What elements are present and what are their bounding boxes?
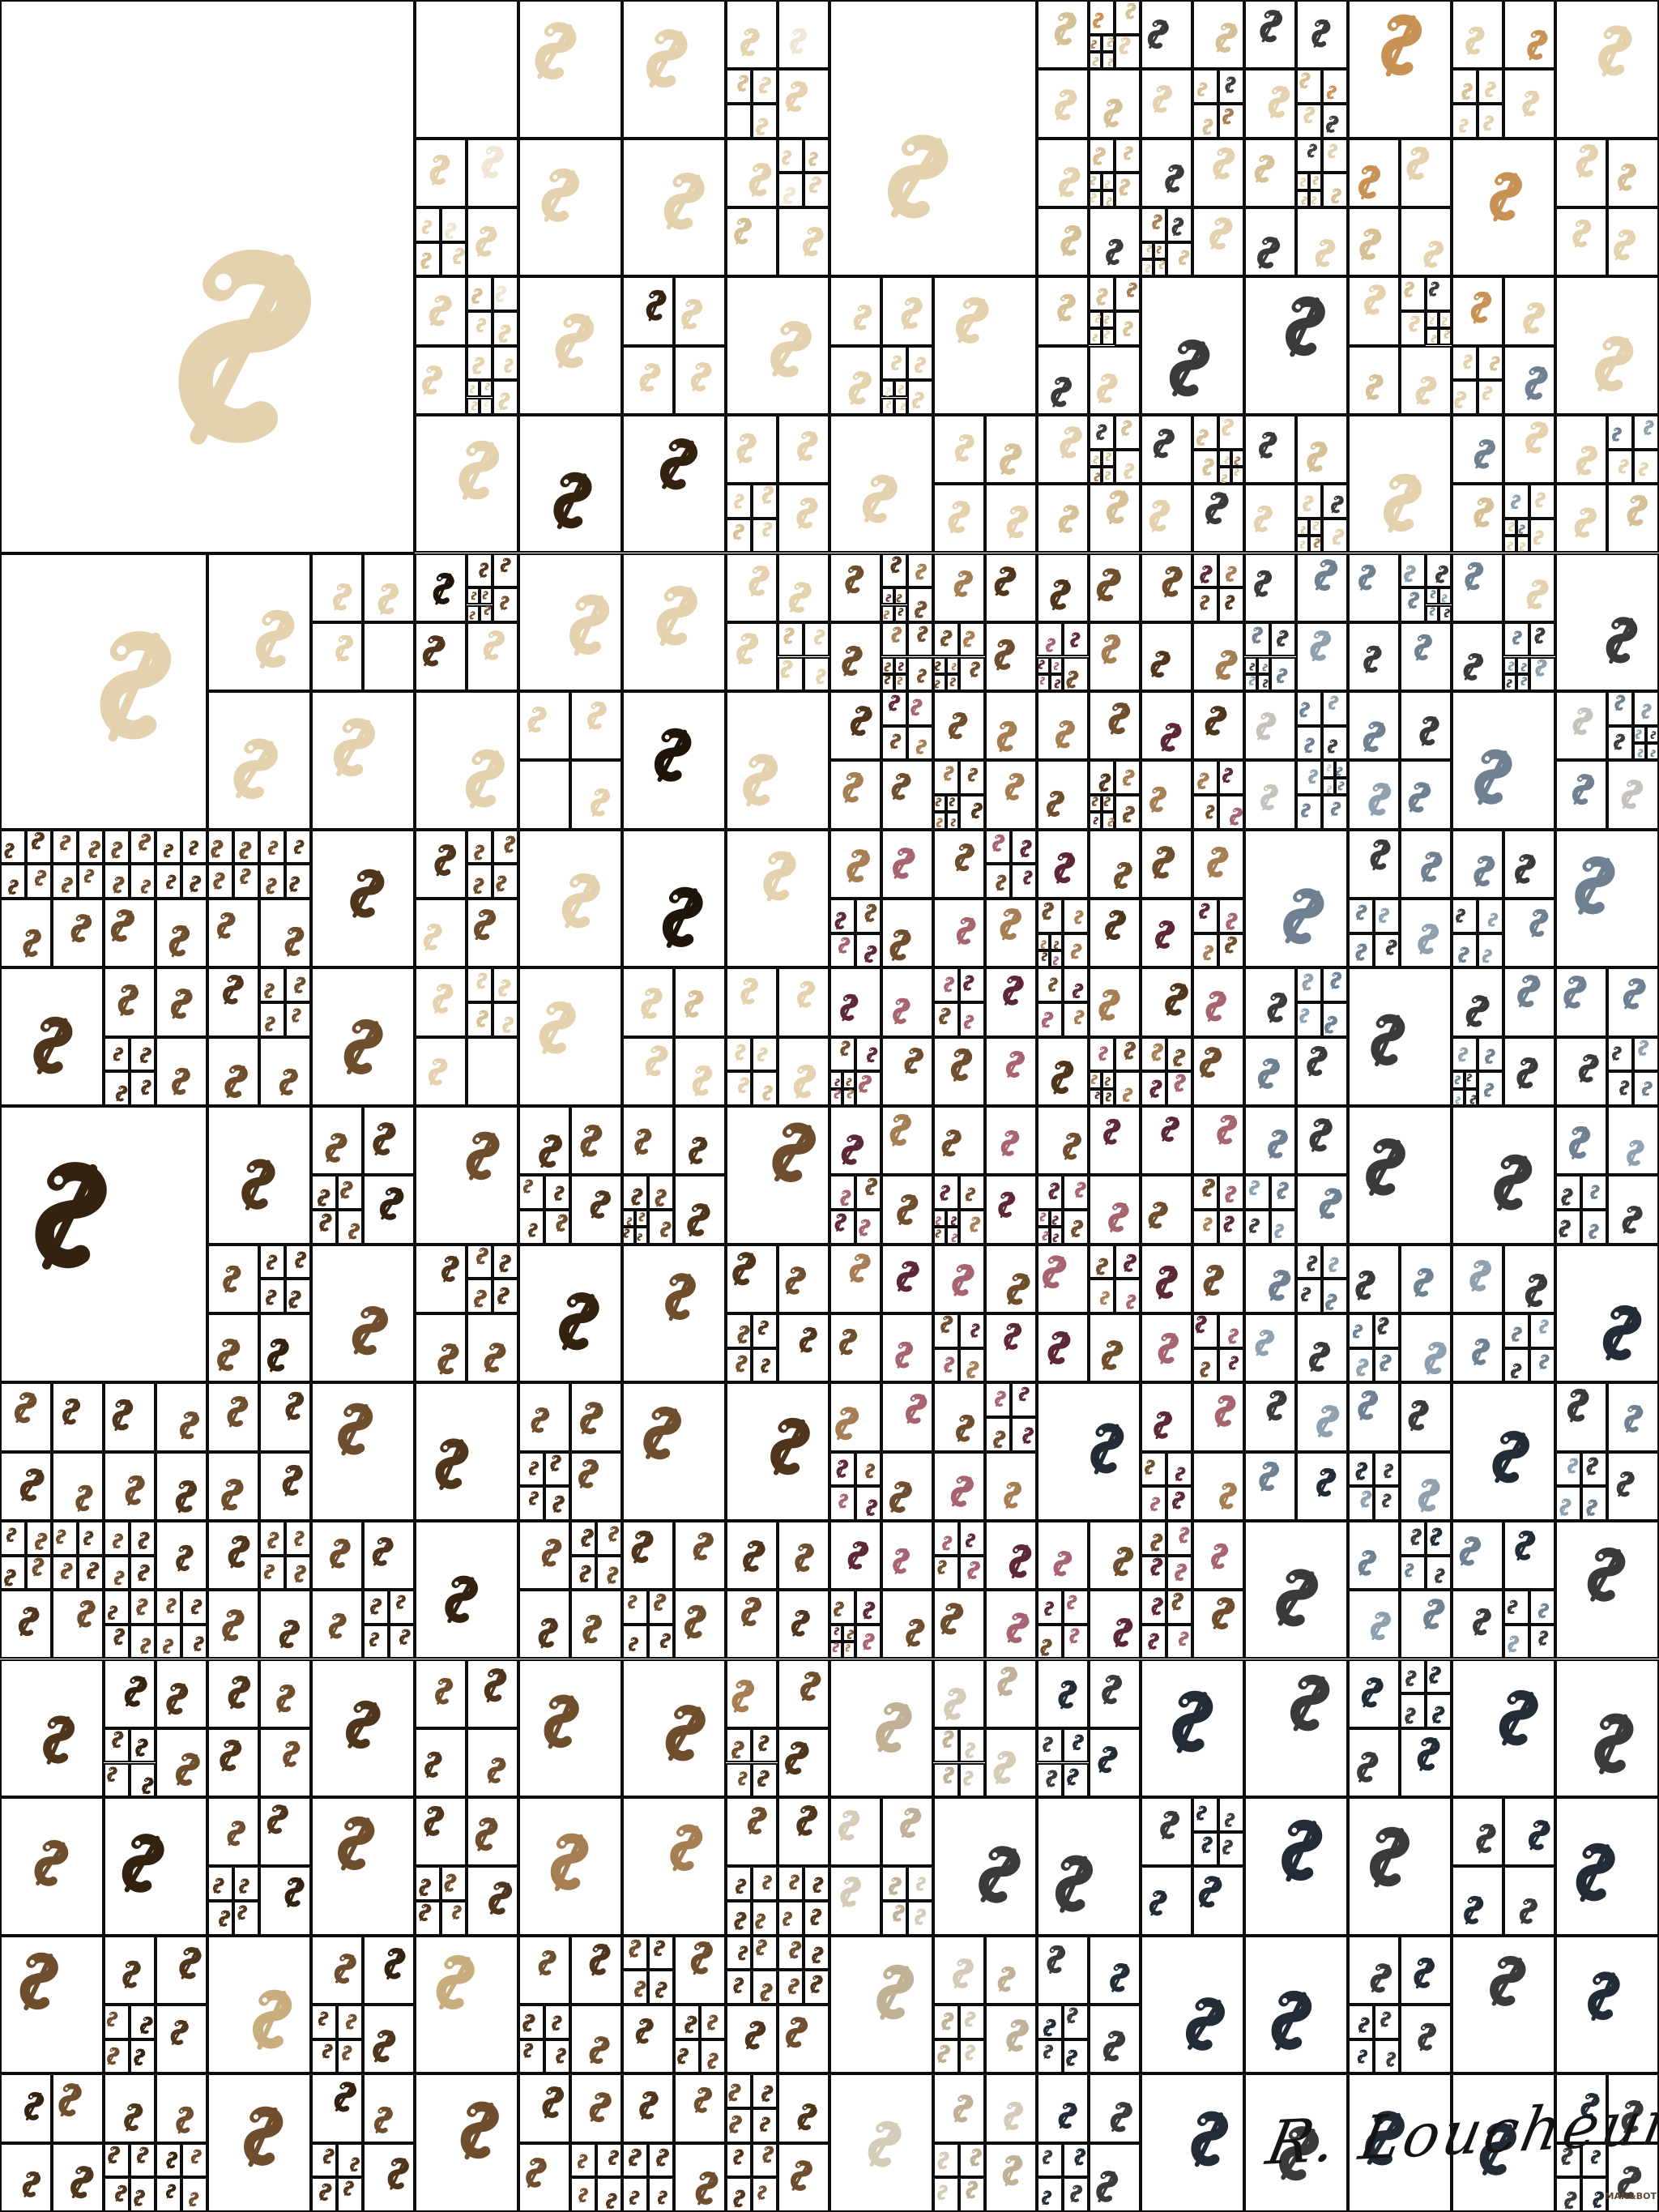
grid-cell bbox=[933, 1659, 985, 1728]
grid-cell bbox=[985, 2005, 1037, 2073]
grid-cell bbox=[959, 1002, 985, 1037]
grid-cell bbox=[311, 830, 415, 968]
grid-cell bbox=[959, 1556, 985, 1591]
grid-cell bbox=[804, 1866, 829, 1901]
grid-cell bbox=[946, 812, 959, 829]
grid-cell bbox=[1529, 1625, 1555, 1659]
grid-cell bbox=[985, 1175, 1037, 1244]
grid-cell bbox=[1348, 1245, 1400, 1313]
grid-cell bbox=[156, 1382, 207, 1451]
grid-cell bbox=[570, 760, 622, 829]
grid-cell bbox=[285, 967, 311, 1002]
grid-cell bbox=[1166, 1521, 1192, 1556]
grid-cell bbox=[1452, 1590, 1503, 1659]
grid-cell bbox=[1426, 328, 1439, 345]
grid-cell bbox=[1309, 173, 1322, 190]
grid-cell bbox=[752, 104, 778, 139]
grid-cell bbox=[1050, 657, 1063, 674]
grid-cell bbox=[1037, 553, 1089, 622]
grid-cell bbox=[1192, 139, 1244, 207]
grid-cell bbox=[881, 830, 933, 899]
grid-cell bbox=[1089, 415, 1115, 450]
grid-cell bbox=[104, 1936, 156, 2005]
grid-cell bbox=[726, 519, 752, 553]
grid-cell bbox=[259, 1279, 285, 1313]
grid-cell bbox=[1348, 622, 1400, 691]
grid-cell bbox=[1426, 553, 1452, 588]
grid-cell bbox=[544, 1486, 570, 1521]
grid-cell bbox=[1192, 622, 1244, 691]
grid-cell bbox=[1348, 1348, 1374, 1383]
grid-cell bbox=[959, 1313, 985, 1348]
grid-cell bbox=[1322, 778, 1335, 795]
grid-cell bbox=[1231, 467, 1244, 484]
grid-cell bbox=[1089, 1279, 1115, 1313]
grid-cell bbox=[1037, 1106, 1089, 1175]
grid-cell bbox=[1555, 2177, 1581, 2212]
grid-cell bbox=[1322, 760, 1335, 777]
grid-cell bbox=[933, 2039, 959, 2074]
grid-cell bbox=[1555, 553, 1659, 692]
grid-cell bbox=[1244, 830, 1348, 968]
grid-cell bbox=[985, 553, 1037, 622]
grid-cell bbox=[752, 1866, 778, 1901]
grid-cell bbox=[26, 830, 52, 865]
grid-cell bbox=[894, 398, 907, 415]
grid-cell bbox=[1555, 1486, 1581, 1521]
grid-cell bbox=[1089, 967, 1141, 1036]
grid-cell bbox=[0, 0, 415, 553]
grid-cell bbox=[1607, 1452, 1659, 1521]
grid-cell bbox=[1141, 1936, 1244, 2074]
grid-cell bbox=[311, 2143, 337, 2178]
grid-cell bbox=[842, 1625, 855, 1642]
grid-cell bbox=[1037, 2177, 1063, 2212]
grid-cell bbox=[1037, 950, 1050, 967]
grid-cell bbox=[1037, 1659, 1089, 1728]
grid-cell bbox=[570, 2143, 596, 2178]
grid-cell bbox=[1037, 657, 1050, 674]
grid-cell bbox=[752, 1348, 778, 1383]
grid-cell bbox=[946, 795, 959, 812]
grid-cell bbox=[622, 1227, 635, 1244]
grid-cell bbox=[1348, 415, 1452, 553]
grid-cell bbox=[1503, 1590, 1529, 1625]
grid-cell bbox=[1374, 2039, 1400, 2074]
grid-cell bbox=[467, 276, 493, 311]
grid-cell bbox=[207, 1452, 259, 1521]
grid-cell bbox=[311, 1659, 415, 1798]
grid-cell bbox=[1503, 415, 1555, 484]
grid-cell bbox=[1102, 812, 1115, 829]
grid-cell bbox=[881, 1175, 933, 1244]
grid-cell bbox=[1244, 139, 1296, 207]
grid-cell bbox=[829, 1089, 842, 1106]
grid-cell bbox=[1555, 207, 1607, 276]
grid-cell bbox=[104, 1590, 130, 1625]
grid-cell bbox=[1192, 1175, 1218, 1210]
grid-cell bbox=[881, 1313, 933, 1382]
grid-cell bbox=[1555, 691, 1607, 760]
grid-cell bbox=[933, 1556, 959, 1591]
grid-cell bbox=[1011, 830, 1037, 865]
grid-cell bbox=[467, 346, 493, 381]
grid-cell bbox=[1452, 1037, 1478, 1072]
grid-cell bbox=[985, 1936, 1037, 2005]
grid-cell bbox=[1089, 899, 1141, 967]
grid-cell bbox=[1465, 1071, 1478, 1088]
grid-cell bbox=[493, 830, 518, 865]
grid-cell bbox=[1452, 139, 1555, 277]
grid-cell bbox=[1011, 1417, 1037, 1452]
grid-cell bbox=[855, 1037, 881, 1072]
grid-cell bbox=[570, 1106, 622, 1175]
grid-cell bbox=[933, 2005, 959, 2039]
grid-cell bbox=[518, 1590, 570, 1659]
grid-cell bbox=[1335, 760, 1348, 777]
grid-cell bbox=[1192, 967, 1244, 1036]
grid-cell bbox=[1296, 691, 1322, 726]
grid-cell bbox=[985, 1313, 1037, 1382]
grid-cell bbox=[1063, 899, 1089, 933]
grid-cell bbox=[1503, 967, 1555, 1036]
grid-cell bbox=[1516, 657, 1529, 674]
grid-cell bbox=[570, 2177, 596, 2212]
grid-cell bbox=[415, 1245, 467, 1313]
grid-cell bbox=[1400, 1521, 1426, 1556]
grid-cell bbox=[985, 622, 1037, 691]
grid-cell bbox=[894, 605, 907, 622]
grid-cell bbox=[104, 2177, 130, 2212]
grid-cell bbox=[156, 1590, 181, 1625]
grid-cell bbox=[1244, 1210, 1270, 1245]
grid-cell bbox=[1037, 2039, 1063, 2074]
grid-cell bbox=[0, 864, 26, 899]
grid-cell bbox=[1296, 553, 1348, 622]
grid-cell bbox=[1322, 1245, 1348, 1279]
grid-cell bbox=[207, 1797, 259, 1866]
grid-cell bbox=[1348, 139, 1400, 207]
grid-cell bbox=[104, 864, 130, 899]
grid-cell bbox=[1296, 726, 1322, 761]
grid-cell bbox=[726, 2143, 752, 2178]
grid-cell bbox=[1192, 104, 1218, 139]
grid-cell bbox=[1439, 605, 1452, 622]
grid-cell bbox=[467, 1037, 518, 1106]
grid-cell bbox=[1452, 1245, 1503, 1313]
grid-cell bbox=[1270, 1210, 1296, 1245]
grid-cell bbox=[1192, 0, 1244, 69]
grid-cell bbox=[1037, 1245, 1089, 1313]
grid-cell bbox=[1633, 743, 1646, 760]
grid-cell bbox=[933, 622, 959, 657]
grid-cell bbox=[1063, 1763, 1089, 1798]
grid-cell bbox=[726, 1313, 752, 1348]
grid-cell bbox=[1400, 830, 1452, 899]
grid-cell bbox=[1270, 657, 1296, 692]
grid-cell bbox=[726, 2073, 752, 2108]
grid-cell bbox=[1374, 2005, 1400, 2039]
grid-cell bbox=[1244, 674, 1257, 691]
grid-cell bbox=[259, 1313, 311, 1382]
grid-cell bbox=[207, 1245, 259, 1313]
grid-cell bbox=[985, 864, 1011, 899]
grid-cell bbox=[1192, 795, 1218, 830]
grid-cell bbox=[1503, 1866, 1555, 1935]
grid-cell bbox=[0, 1590, 52, 1659]
grid-cell bbox=[622, 1797, 726, 1936]
grid-cell bbox=[985, 1245, 1037, 1313]
grid-cell bbox=[1296, 139, 1322, 173]
grid-cell bbox=[1102, 328, 1115, 345]
grid-cell bbox=[1244, 1797, 1348, 1936]
grid-cell bbox=[259, 1382, 311, 1451]
grid-cell bbox=[1063, 1002, 1089, 1037]
grid-cell bbox=[946, 1210, 959, 1227]
grid-cell bbox=[1296, 967, 1322, 1002]
grid-cell bbox=[829, 1071, 842, 1088]
grid-cell bbox=[855, 1486, 881, 1521]
grid-cell bbox=[1348, 933, 1374, 968]
grid-cell bbox=[1322, 519, 1348, 553]
grid-cell bbox=[1115, 35, 1141, 70]
grid-cell bbox=[1166, 1486, 1192, 1521]
grid-cell bbox=[622, 1210, 635, 1227]
grid-cell bbox=[1400, 1659, 1426, 1694]
grid-cell bbox=[1141, 1452, 1166, 1487]
grid-cell bbox=[518, 1936, 570, 2005]
grid-cell bbox=[1607, 760, 1659, 829]
grid-cell bbox=[1192, 553, 1218, 588]
grid-cell bbox=[1192, 691, 1244, 760]
grid-cell bbox=[544, 1175, 570, 1210]
grid-cell bbox=[804, 1901, 829, 1936]
grid-cell bbox=[1374, 899, 1400, 933]
grid-cell bbox=[389, 1590, 415, 1625]
grid-cell bbox=[1452, 933, 1478, 968]
grid-cell bbox=[1400, 139, 1452, 207]
grid-cell bbox=[1037, 2005, 1063, 2039]
grid-cell bbox=[363, 1175, 415, 1244]
grid-cell bbox=[156, 1625, 181, 1659]
grid-cell bbox=[1089, 311, 1102, 328]
grid-cell bbox=[1322, 967, 1348, 1002]
grid-cell bbox=[1400, 1936, 1452, 2005]
grid-cell bbox=[1244, 1106, 1296, 1175]
grid-cell bbox=[363, 1936, 415, 2005]
grid-cell bbox=[726, 1797, 778, 1866]
grid-cell bbox=[829, 1037, 855, 1072]
grid-cell bbox=[1296, 0, 1348, 69]
grid-cell bbox=[207, 1313, 259, 1382]
grid-cell bbox=[1296, 190, 1309, 207]
grid-cell bbox=[1607, 139, 1659, 207]
grid-cell bbox=[1516, 519, 1529, 536]
grid-cell bbox=[1503, 899, 1555, 967]
grid-cell bbox=[1166, 1556, 1192, 1591]
grid-cell bbox=[1218, 415, 1244, 450]
grid-cell bbox=[1089, 190, 1102, 207]
grid-cell bbox=[337, 2143, 363, 2178]
grid-cell bbox=[1218, 760, 1244, 795]
grid-cell bbox=[415, 346, 467, 415]
grid-cell bbox=[1037, 899, 1063, 933]
grid-cell bbox=[363, 1590, 389, 1625]
grid-cell bbox=[467, 605, 480, 622]
grid-cell bbox=[959, 2143, 985, 2178]
grid-cell bbox=[1348, 1486, 1374, 1521]
grid-cell bbox=[1192, 1106, 1244, 1175]
grid-cell bbox=[1452, 1936, 1555, 2074]
grid-cell bbox=[104, 2143, 130, 2178]
grid-cell bbox=[1244, 1452, 1296, 1521]
grid-cell bbox=[1555, 1037, 1607, 1106]
grid-cell bbox=[1050, 1210, 1063, 1227]
grid-cell bbox=[1037, 1227, 1050, 1244]
grid-cell bbox=[130, 1728, 156, 1763]
grid-cell bbox=[1089, 1175, 1141, 1244]
grid-cell bbox=[855, 1210, 881, 1245]
grid-cell bbox=[1141, 1590, 1166, 1625]
grid-cell bbox=[726, 2108, 752, 2143]
grid-cell bbox=[1231, 450, 1244, 467]
grid-cell bbox=[1141, 242, 1154, 259]
grid-cell bbox=[415, 1382, 518, 1521]
grid-cell bbox=[0, 2143, 52, 2212]
grid-cell bbox=[415, 139, 467, 207]
grid-cell bbox=[1218, 1348, 1244, 1383]
grid-cell bbox=[1115, 760, 1141, 795]
grid-cell bbox=[156, 1728, 207, 1797]
grid-cell bbox=[259, 1245, 285, 1279]
grid-cell bbox=[881, 380, 894, 397]
grid-cell bbox=[752, 2143, 778, 2178]
grid-cell bbox=[1011, 864, 1037, 899]
grid-cell bbox=[985, 691, 1037, 760]
grid-cell bbox=[285, 1245, 311, 1279]
grid-cell bbox=[1296, 415, 1348, 484]
grid-cell bbox=[544, 1210, 570, 1245]
grid-cell bbox=[1439, 328, 1452, 345]
grid-cell bbox=[1478, 899, 1503, 933]
grid-cell bbox=[518, 967, 622, 1106]
grid-cell bbox=[1037, 2073, 1089, 2142]
grid-cell bbox=[181, 2143, 207, 2178]
grid-cell bbox=[778, 484, 829, 553]
grid-cell bbox=[1089, 69, 1141, 138]
grid-cell bbox=[156, 1659, 207, 1728]
grid-cell bbox=[1192, 830, 1244, 899]
grid-cell bbox=[881, 760, 933, 829]
grid-cell bbox=[467, 311, 493, 346]
grid-cell bbox=[1063, 2143, 1089, 2178]
grid-cell bbox=[1089, 139, 1115, 173]
grid-cell bbox=[1141, 415, 1192, 484]
grid-cell bbox=[907, 553, 933, 588]
grid-cell bbox=[881, 553, 907, 588]
grid-cell bbox=[933, 1175, 959, 1210]
grid-cell bbox=[1374, 1452, 1400, 1487]
grid-cell bbox=[778, 1590, 829, 1659]
grid-cell bbox=[1037, 1002, 1063, 1037]
grid-cell bbox=[674, 2073, 726, 2142]
grid-cell bbox=[726, 484, 752, 519]
grid-cell bbox=[881, 587, 894, 604]
grid-cell bbox=[959, 2005, 985, 2039]
grid-cell bbox=[1400, 1382, 1452, 1451]
grid-cell bbox=[933, 1037, 985, 1106]
grid-cell bbox=[648, 1970, 674, 2005]
grid-cell bbox=[1503, 536, 1516, 553]
grid-cell bbox=[1503, 1313, 1529, 1348]
grid-cell bbox=[881, 622, 907, 657]
grid-cell bbox=[1102, 1071, 1115, 1088]
grid-cell bbox=[518, 691, 570, 760]
grid-cell bbox=[0, 1452, 52, 1521]
grid-cell bbox=[946, 1227, 959, 1244]
grid-cell bbox=[207, 1866, 233, 1901]
grid-cell bbox=[933, 1348, 959, 1383]
grid-cell bbox=[1555, 276, 1659, 415]
grid-cell bbox=[415, 1797, 467, 1866]
grid-cell bbox=[778, 1797, 829, 1866]
grid-cell bbox=[518, 415, 622, 553]
grid-cell bbox=[1192, 1382, 1244, 1451]
grid-cell bbox=[1322, 139, 1348, 173]
grid-cell bbox=[635, 1210, 648, 1227]
grid-cell bbox=[726, 553, 778, 622]
grid-cell bbox=[622, 1590, 648, 1625]
grid-cell bbox=[1192, 1521, 1244, 1590]
grid-cell bbox=[1244, 967, 1296, 1036]
grid-cell bbox=[726, 415, 778, 484]
grid-cell bbox=[933, 2073, 985, 2142]
grid-cell bbox=[1452, 484, 1503, 553]
grid-cell bbox=[648, 1210, 674, 1245]
grid-cell bbox=[933, 1245, 985, 1313]
grid-cell bbox=[1244, 1175, 1270, 1210]
grid-cell bbox=[1646, 743, 1659, 760]
grid-cell bbox=[156, 2177, 181, 2212]
grid-cell bbox=[311, 622, 363, 691]
grid-cell bbox=[181, 864, 207, 899]
grid-cell bbox=[829, 1590, 855, 1625]
grid-cell bbox=[285, 864, 311, 899]
grid-cell bbox=[933, 1590, 985, 1659]
grid-cell bbox=[1037, 760, 1089, 829]
grid-cell bbox=[1503, 830, 1555, 899]
grid-cell bbox=[648, 1590, 674, 1625]
grid-cell bbox=[674, 1590, 726, 1659]
grid-cell bbox=[130, 2143, 156, 2178]
grid-cell bbox=[1452, 1313, 1503, 1382]
grid-cell bbox=[26, 1556, 52, 1591]
grid-cell bbox=[1348, 967, 1452, 1106]
grid-cell bbox=[1166, 1452, 1192, 1487]
grid-cell bbox=[1037, 69, 1089, 138]
grid-cell bbox=[933, 1313, 959, 1348]
grid-cell bbox=[467, 1002, 493, 1037]
grid-cell bbox=[467, 139, 518, 207]
grid-cells-layer bbox=[0, 0, 1659, 2212]
grid-cell bbox=[804, 173, 829, 207]
grid-cell bbox=[467, 587, 480, 604]
grid-cell bbox=[285, 1002, 311, 1037]
grid-cell bbox=[467, 1797, 518, 1866]
grid-cell bbox=[778, 1037, 829, 1106]
grid-cell bbox=[1244, 69, 1296, 138]
grid-cell bbox=[156, 1452, 207, 1521]
